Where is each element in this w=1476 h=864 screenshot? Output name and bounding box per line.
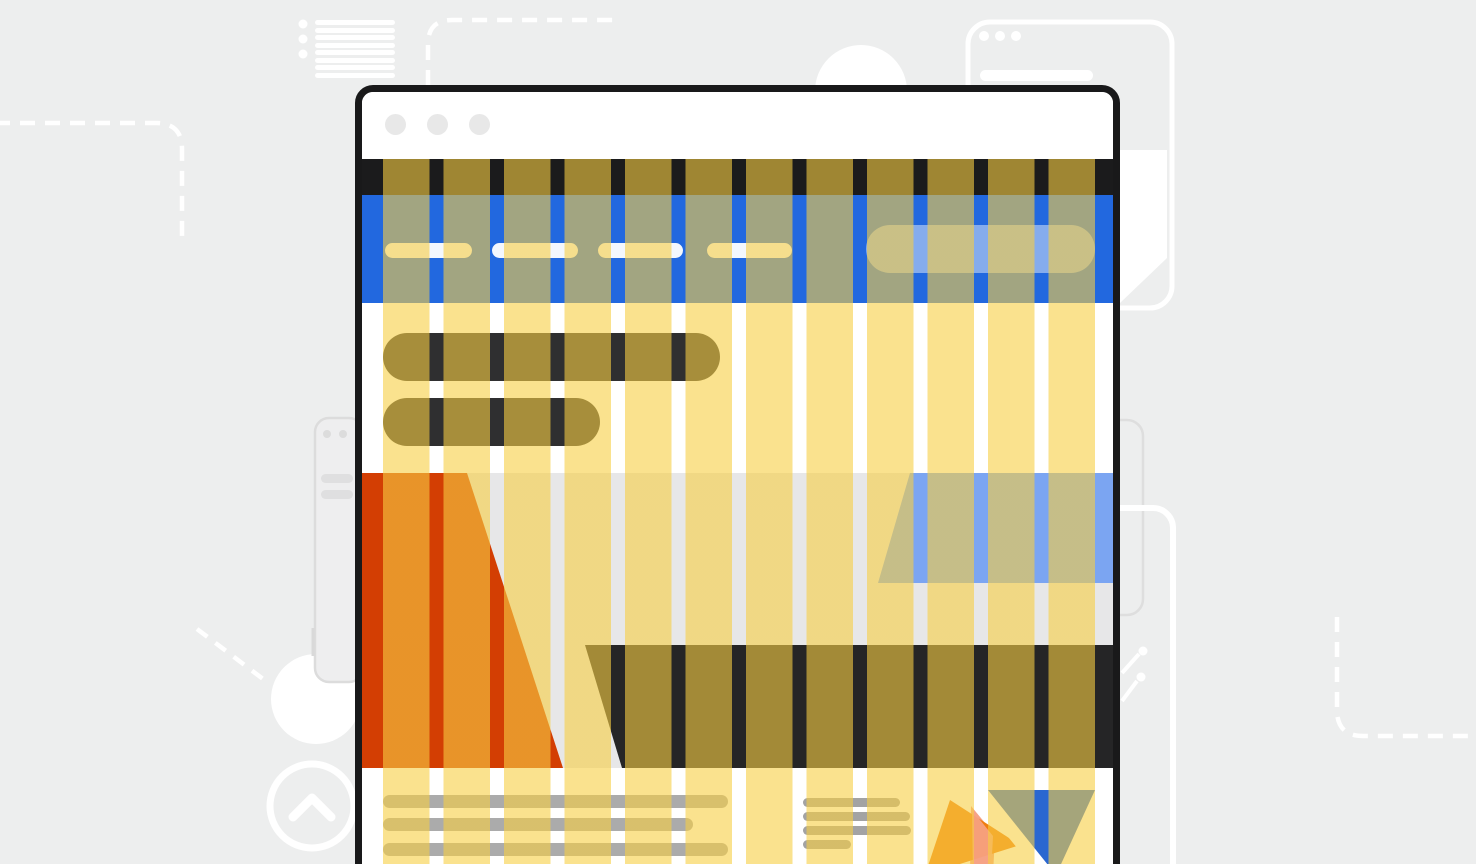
cta-button[interactable] xyxy=(866,225,1095,273)
bullet-dot xyxy=(299,20,308,29)
window-control-dot[interactable] xyxy=(427,114,448,135)
triangle-collage-image xyxy=(925,790,1095,864)
blue-parallelogram-media xyxy=(878,473,1113,583)
bubble-window-dot xyxy=(979,31,989,41)
text-line xyxy=(315,50,395,55)
browser-window xyxy=(355,85,1120,864)
bullet-dot xyxy=(299,35,308,44)
paragraph-line xyxy=(383,795,728,808)
heading-bar-small xyxy=(383,398,600,446)
illustration-stage xyxy=(0,0,1476,864)
phone-card-dot xyxy=(323,430,331,438)
paragraph-line xyxy=(383,843,728,856)
heading-section xyxy=(362,303,1113,473)
text-line xyxy=(315,65,395,70)
chevron-up-icon xyxy=(293,798,331,817)
text-block-doodle xyxy=(299,20,396,79)
text-line xyxy=(315,20,395,25)
triangle-collage-shapes xyxy=(925,790,1095,864)
text-line xyxy=(315,58,395,63)
circuit-decoration xyxy=(1122,647,1148,702)
circuit-node xyxy=(1139,647,1148,656)
dark-image-bar xyxy=(585,645,1113,768)
nav-link-pill[interactable] xyxy=(492,243,578,258)
dashed-diagonal-line xyxy=(197,629,267,682)
phone-card-dot xyxy=(339,430,347,438)
scroll-top-button[interactable] xyxy=(270,764,354,848)
caption-line xyxy=(803,840,851,849)
caption-line xyxy=(803,812,910,821)
caption-line xyxy=(803,826,911,835)
dashed-outline-left xyxy=(0,123,182,242)
text-line xyxy=(315,28,395,33)
bubble-window-dot xyxy=(995,31,1005,41)
collage-salmon-sliver xyxy=(972,810,993,864)
window-control-dot[interactable] xyxy=(469,114,490,135)
nav-link-pill[interactable] xyxy=(707,243,792,258)
media-shapes xyxy=(362,473,1113,768)
orange-trapezoid-media xyxy=(362,473,563,768)
bubble-window-dot xyxy=(1011,31,1021,41)
dashed-outline-bottom-right xyxy=(1337,617,1476,736)
bubble-url-bar xyxy=(980,70,1093,81)
scroll-top-ring[interactable] xyxy=(270,764,354,848)
window-titlebar xyxy=(362,92,1113,159)
window-control-dot[interactable] xyxy=(385,114,406,135)
nav-link-pill[interactable] xyxy=(385,243,472,258)
phone-card-line xyxy=(321,474,353,483)
text-line xyxy=(315,43,395,48)
text-line xyxy=(315,35,395,40)
circuit-line xyxy=(1122,654,1139,673)
caption-line xyxy=(803,798,900,807)
hero-nav-bar xyxy=(362,195,1113,303)
nav-link-pill[interactable] xyxy=(598,243,683,258)
phone-card-line xyxy=(321,490,353,499)
article-section xyxy=(362,768,1113,864)
paragraph-line xyxy=(383,818,693,831)
circuit-line xyxy=(1122,681,1137,701)
text-line xyxy=(315,73,395,78)
bullet-dot xyxy=(299,50,308,59)
circuit-node xyxy=(1137,673,1146,682)
media-section xyxy=(362,473,1113,768)
heading-bar-large xyxy=(383,333,720,381)
top-navbar xyxy=(362,159,1113,195)
